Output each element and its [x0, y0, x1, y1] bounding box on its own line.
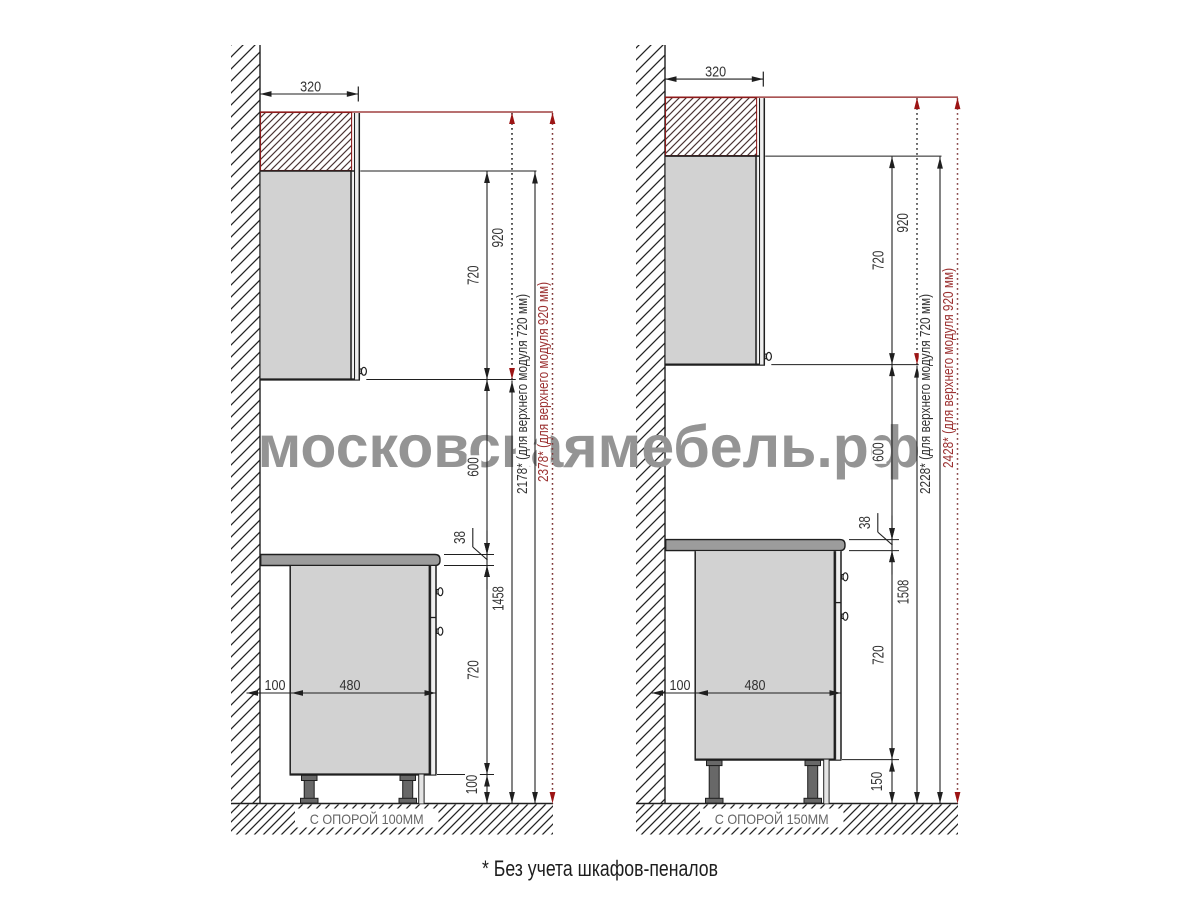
svg-text:320: 320 [705, 65, 726, 81]
svg-text:1508: 1508 [896, 580, 913, 605]
svg-text:2428* (для верхнего модуля 920: 2428* (для верхнего модуля 920 мм) [940, 268, 957, 468]
svg-text:720: 720 [466, 660, 483, 680]
svg-text:С ОПОРОЙ 150ММ: С ОПОРОЙ 150ММ [715, 810, 829, 827]
svg-text:38: 38 [857, 516, 874, 529]
svg-text:100: 100 [670, 678, 691, 694]
svg-text:480: 480 [745, 678, 766, 694]
svg-text:920: 920 [490, 228, 507, 248]
svg-text:2228* (для верхнего модуля 720: 2228* (для верхнего модуля 720 мм) [917, 294, 934, 494]
svg-text:* Без учета шкафов-пеналов: * Без учета шкафов-пеналов [482, 856, 718, 881]
svg-text:320: 320 [300, 80, 321, 96]
svg-text:720: 720 [871, 645, 888, 665]
svg-text:480: 480 [340, 678, 361, 694]
svg-text:600: 600 [466, 457, 483, 477]
svg-text:720: 720 [466, 265, 483, 285]
svg-text:2178* (для верхнего модуля 720: 2178* (для верхнего модуля 720 мм) [514, 294, 531, 494]
svg-text:2378* (для верхнего модуля 920: 2378* (для верхнего модуля 920 мм) [535, 282, 552, 482]
svg-text:1458: 1458 [491, 586, 508, 611]
svg-text:720: 720 [871, 251, 888, 271]
svg-text:600: 600 [871, 442, 888, 462]
svg-text:С ОПОРОЙ 100ММ: С ОПОРОЙ 100ММ [310, 810, 424, 827]
svg-text:100: 100 [464, 775, 481, 795]
svg-text:920: 920 [895, 213, 912, 233]
svg-text:150: 150 [869, 772, 886, 792]
svg-text:38: 38 [452, 531, 469, 544]
svg-text:100: 100 [265, 678, 286, 694]
svg-text:московскаямебель.рф: московскаямебель.рф [258, 414, 921, 480]
